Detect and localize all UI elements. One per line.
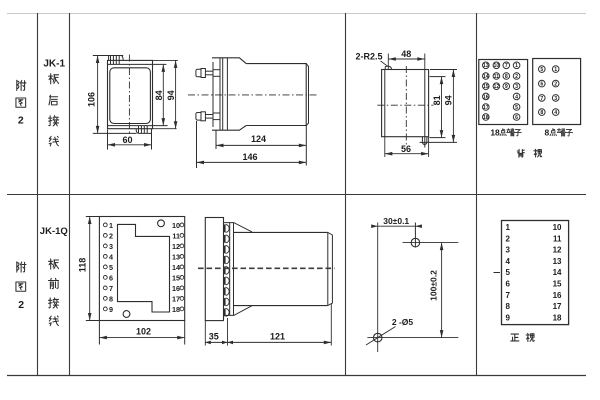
svg-text:17: 17 xyxy=(483,105,489,111)
svg-text:4: 4 xyxy=(109,252,113,261)
svg-text:94: 94 xyxy=(444,95,454,105)
svg-text:60: 60 xyxy=(122,135,132,145)
svg-text:6: 6 xyxy=(109,273,113,282)
svg-text:8: 8 xyxy=(506,302,511,311)
svg-text:8: 8 xyxy=(505,74,508,80)
svg-text:6: 6 xyxy=(540,82,543,88)
svg-text:12: 12 xyxy=(553,246,562,255)
svg-text:16: 16 xyxy=(483,94,489,100)
svg-text:2: 2 xyxy=(506,234,511,243)
svg-text:14: 14 xyxy=(483,74,489,80)
svg-text:11: 11 xyxy=(494,74,500,80)
svg-text:94: 94 xyxy=(166,90,176,100)
svg-text:18: 18 xyxy=(490,127,500,137)
svg-text:3: 3 xyxy=(506,246,511,255)
svg-text:2: 2 xyxy=(109,231,113,240)
svg-text:16: 16 xyxy=(553,291,562,300)
svg-text:118: 118 xyxy=(78,258,88,273)
svg-text:8: 8 xyxy=(109,294,113,303)
svg-text:15: 15 xyxy=(172,273,180,282)
svg-text:10: 10 xyxy=(172,221,180,230)
svg-text:8: 8 xyxy=(544,127,549,137)
svg-text:121: 121 xyxy=(270,332,285,342)
svg-text:12: 12 xyxy=(494,84,500,90)
svg-text:3: 3 xyxy=(109,242,113,251)
svg-text:9: 9 xyxy=(109,305,113,314)
svg-text:146: 146 xyxy=(242,152,257,162)
svg-text:124: 124 xyxy=(251,134,266,144)
svg-text:13: 13 xyxy=(172,252,180,261)
svg-text:18: 18 xyxy=(483,115,489,121)
svg-text:35: 35 xyxy=(209,332,219,342)
svg-text:15: 15 xyxy=(483,84,489,90)
svg-text:7: 7 xyxy=(506,291,511,300)
svg-text:81: 81 xyxy=(432,95,442,105)
svg-text:11: 11 xyxy=(553,234,562,243)
svg-text:5: 5 xyxy=(506,268,511,277)
svg-text:2: 2 xyxy=(18,115,24,127)
svg-text:48: 48 xyxy=(401,49,411,59)
svg-text:100±0.2: 100±0.2 xyxy=(429,270,439,301)
svg-text:17: 17 xyxy=(553,302,562,311)
svg-text:4: 4 xyxy=(506,257,511,266)
svg-text:1: 1 xyxy=(109,221,113,230)
svg-text:5: 5 xyxy=(540,67,543,73)
svg-text:10: 10 xyxy=(494,63,500,69)
svg-text:5: 5 xyxy=(515,105,518,111)
svg-text:13: 13 xyxy=(553,257,562,266)
svg-text:18: 18 xyxy=(553,313,562,322)
svg-text:2: 2 xyxy=(554,82,557,88)
svg-text:4: 4 xyxy=(554,110,557,116)
svg-text:1: 1 xyxy=(554,67,557,73)
svg-text:2: 2 xyxy=(515,74,518,80)
svg-text:9: 9 xyxy=(506,313,511,322)
svg-text:7: 7 xyxy=(109,284,113,293)
svg-text:12: 12 xyxy=(172,242,180,251)
svg-text:17: 17 xyxy=(172,294,180,303)
svg-text:10: 10 xyxy=(553,223,562,232)
svg-text:3: 3 xyxy=(554,96,557,102)
svg-text:11: 11 xyxy=(172,231,180,240)
svg-text:6: 6 xyxy=(515,115,518,121)
svg-text:3: 3 xyxy=(515,84,518,90)
svg-text:102: 102 xyxy=(136,326,151,336)
svg-text:8: 8 xyxy=(540,110,543,116)
svg-text:1: 1 xyxy=(506,223,511,232)
svg-text:7: 7 xyxy=(505,63,508,69)
svg-text:56: 56 xyxy=(401,144,411,154)
svg-text:2 -Ø5: 2 -Ø5 xyxy=(392,317,414,327)
svg-text:14: 14 xyxy=(172,263,180,272)
svg-text:84: 84 xyxy=(154,90,164,100)
svg-text:4: 4 xyxy=(515,94,518,100)
svg-text:9: 9 xyxy=(505,84,508,90)
svg-text:14: 14 xyxy=(553,268,562,277)
svg-text:5: 5 xyxy=(109,263,113,272)
svg-text:7: 7 xyxy=(540,96,543,102)
svg-text:18: 18 xyxy=(172,305,180,314)
svg-text:16: 16 xyxy=(172,284,180,293)
svg-text:6: 6 xyxy=(506,280,511,289)
svg-text:JK-1Q: JK-1Q xyxy=(40,226,68,237)
svg-text:JK-1: JK-1 xyxy=(43,59,65,70)
svg-text:1: 1 xyxy=(515,63,518,69)
svg-text:30±0.1: 30±0.1 xyxy=(383,216,409,226)
svg-text:15: 15 xyxy=(553,280,562,289)
svg-text:106: 106 xyxy=(87,92,97,107)
svg-text:2-R2.5: 2-R2.5 xyxy=(355,52,382,62)
svg-text:2: 2 xyxy=(18,299,24,311)
svg-text:13: 13 xyxy=(483,63,489,69)
